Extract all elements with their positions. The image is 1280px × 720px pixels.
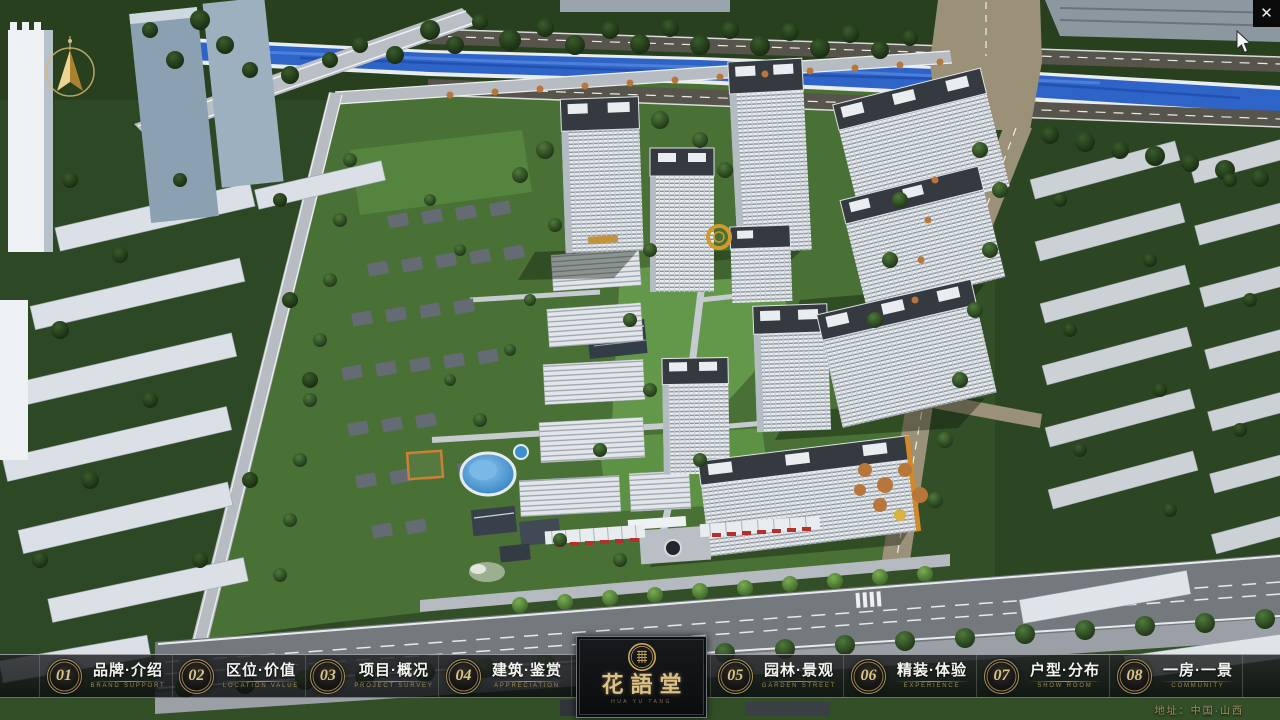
logo-tagline: HUA YU TANG xyxy=(611,699,672,705)
nav-sublabel: SHOW ROOM xyxy=(1037,683,1092,689)
nav-item-architecture[interactable]: 04 建筑·鉴赏 APPRECIATION xyxy=(439,655,572,697)
nav-item-floorplans[interactable]: 07 户型·分布 SHOW ROOM xyxy=(977,655,1110,697)
nav-sublabel: EXPERIENCE xyxy=(904,683,961,689)
compass-icon xyxy=(42,34,98,102)
logo-title: 花語堂 xyxy=(594,673,688,697)
nav-badge-08: 08 xyxy=(1117,659,1152,694)
nav-underline xyxy=(895,681,969,682)
close-button[interactable]: ✕ xyxy=(1253,0,1280,27)
nav-item-project[interactable]: 03 项目·概况 PROJECT SURVEY xyxy=(306,655,439,697)
nav-sublabel: BRAND SUPPORT xyxy=(91,683,166,689)
nav-item-interior[interactable]: 06 精装·体验 EXPERIENCE xyxy=(844,655,977,697)
nav-underline xyxy=(1161,681,1235,682)
nav-spacer-left xyxy=(0,655,40,697)
nav-label: 精装·体验 xyxy=(897,663,967,680)
nav-badge-05: 05 xyxy=(718,659,753,694)
nav-badge-04: 04 xyxy=(446,659,481,694)
nav-underline xyxy=(354,681,433,682)
brand-logo-panel: 花語堂 HUA YU TANG xyxy=(576,636,707,718)
nav-underline xyxy=(1028,681,1102,682)
nav-label: 园林·景观 xyxy=(764,663,834,680)
close-icon: ✕ xyxy=(1260,5,1273,22)
nav-item-location[interactable]: 02 区位·价值 LOCATION VALUE xyxy=(173,655,306,697)
nav-badge-06: 06 xyxy=(851,659,886,694)
nav-badge-01: 01 xyxy=(47,659,82,694)
presentation-window: ✕ 01 品牌·介绍 BRAND SUPPORT 02 区位·价值 LOCATI… xyxy=(0,0,1280,720)
nav-spacer-right xyxy=(1243,655,1280,697)
nav-underline xyxy=(490,681,564,682)
nav-label: 项目·概况 xyxy=(359,663,429,680)
nav-label: 户型·分布 xyxy=(1030,663,1100,680)
masterplan-render[interactable] xyxy=(0,0,1280,720)
nav-item-garden[interactable]: 05 园林·景观 GARDEN STREET xyxy=(711,655,844,697)
nav-label: 品牌·介绍 xyxy=(93,663,163,680)
nav-sublabel: PROJECT SURVEY xyxy=(354,683,433,689)
nav-underline xyxy=(91,681,166,682)
nav-badge-07: 07 xyxy=(984,659,1019,694)
address-text: 地址：中国·山西 xyxy=(1155,702,1244,717)
nav-item-brand[interactable]: 01 品牌·介绍 BRAND SUPPORT xyxy=(40,655,173,697)
nav-sublabel: LOCATION VALUE xyxy=(223,683,299,689)
nav-label: 建筑·鉴赏 xyxy=(492,663,562,680)
nav-badge-03: 03 xyxy=(310,659,345,694)
nav-sublabel: GARDEN STREET xyxy=(762,683,836,689)
nav-label: 区位·价值 xyxy=(226,663,296,680)
mouse-cursor xyxy=(1236,30,1254,61)
nav-item-views[interactable]: 08 一房·一景 COMMUNITY xyxy=(1110,655,1243,697)
brand-emblem-icon xyxy=(627,642,657,672)
nav-underline xyxy=(762,681,836,682)
nav-underline xyxy=(223,681,299,682)
nav-label: 一房·一景 xyxy=(1163,663,1233,680)
nav-badge-02: 02 xyxy=(179,659,214,694)
nav-sublabel: APPRECIATION xyxy=(494,683,560,689)
nav-sublabel: COMMUNITY xyxy=(1171,683,1224,689)
